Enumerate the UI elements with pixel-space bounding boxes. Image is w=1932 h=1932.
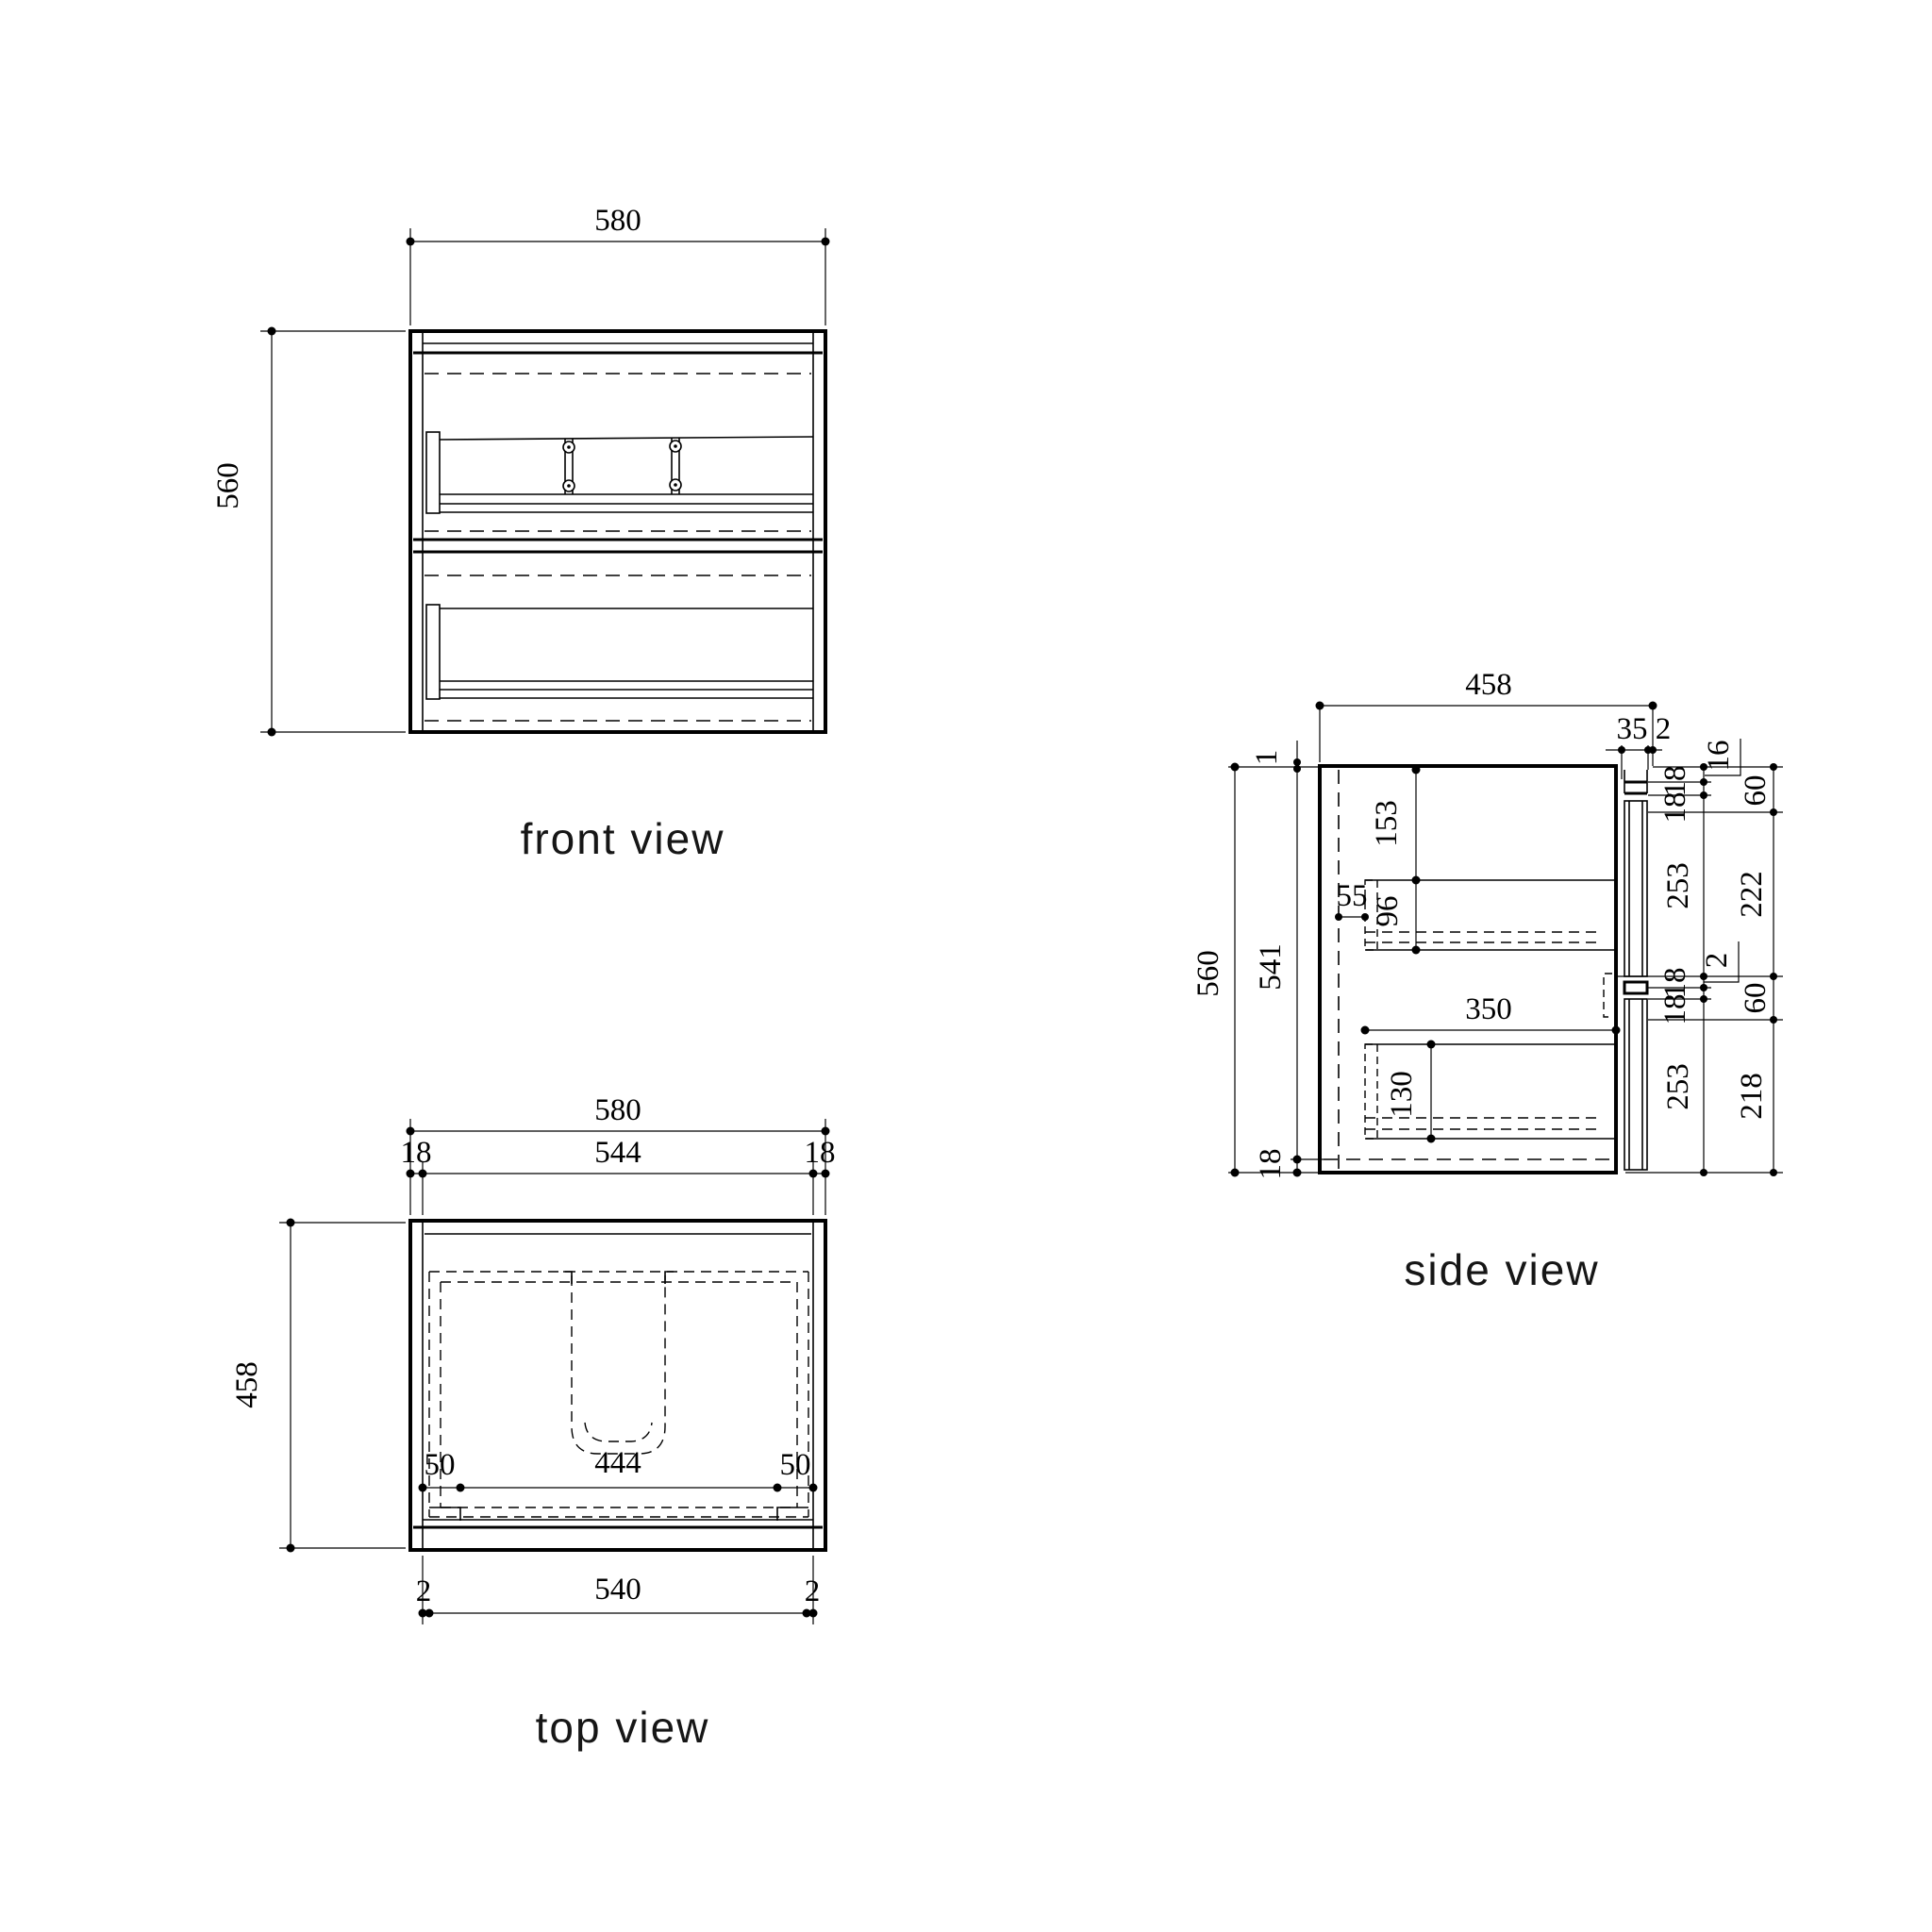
- side-view-drawing: 458 35 2 560 1 541 18: [1191, 668, 1783, 1294]
- side-right-inner-18d: 18: [1658, 994, 1692, 1025]
- front-height-dimension: 560: [211, 327, 406, 737]
- side-height-value: 560: [1191, 950, 1225, 997]
- drawing-svg: 580 560 front view: [0, 0, 1932, 1932]
- side-right-outer-218: 218: [1735, 1073, 1769, 1120]
- top-wall-left-value: 18: [401, 1136, 432, 1170]
- front-width-value: 580: [594, 204, 641, 238]
- side-front-thickness-value: 35: [1617, 712, 1648, 746]
- side-right-outer-60a: 60: [1739, 775, 1773, 807]
- basin-offset-right-value: 50: [780, 1448, 811, 1482]
- side-depth-dimension: 458: [1316, 668, 1657, 766]
- front-view-drawing: 580 560 front view: [211, 204, 830, 863]
- side-view-carcass: [1320, 766, 1616, 1173]
- side-height-dimensions: 560 1 541 18: [1191, 741, 1324, 1180]
- front-view-label: front view: [521, 814, 725, 863]
- technical-drawing-page: 580 560 front view: [0, 0, 1932, 1932]
- side-view-label: side view: [1404, 1245, 1599, 1294]
- top-width-value: 580: [594, 1093, 641, 1127]
- top-bottom-width-value: 540: [594, 1573, 641, 1607]
- side-mid-gap-value: 2: [1700, 953, 1734, 969]
- front-height-value: 560: [211, 462, 245, 509]
- top-gap-left-value: 2: [416, 1574, 432, 1608]
- side-depth-value: 458: [1465, 668, 1512, 702]
- side-bottom-drawer-side-value: 130: [1385, 1071, 1419, 1118]
- side-right-inner-253a: 253: [1661, 862, 1695, 909]
- side-right-inner-18b: 18: [1658, 792, 1692, 824]
- side-top-clearance-value: 1: [1250, 750, 1284, 766]
- side-top-drawer-offset-value: 153: [1370, 800, 1404, 847]
- top-view-label: top view: [536, 1703, 710, 1752]
- basin-offset-left-value: 50: [425, 1448, 456, 1482]
- front-width-dimension: 580: [407, 204, 830, 325]
- side-view-drawer-fronts: [1624, 770, 1647, 1170]
- side-bottom-panel-value: 18: [1254, 1149, 1288, 1180]
- side-back-clearance-value: 55: [1337, 879, 1368, 913]
- side-bottom-drawer-depth-value: 350: [1465, 992, 1512, 1026]
- top-view-carcass: [410, 1221, 825, 1550]
- top-depth-dimension: 458: [230, 1219, 406, 1553]
- side-inner-height-value: 541: [1254, 943, 1288, 991]
- basin-width-value: 444: [594, 1446, 641, 1480]
- top-view-drawing: 50 444 50 580 18 544 18 458: [230, 1093, 836, 1752]
- top-width-dimension: 580 18 544 18: [401, 1093, 836, 1215]
- side-top-rail-value: 16: [1702, 741, 1736, 772]
- side-right-inner-253b: 253: [1661, 1063, 1695, 1110]
- top-gap-right-value: 2: [805, 1574, 821, 1608]
- side-right-outer-222: 222: [1735, 871, 1769, 918]
- side-front-gap-value: 2: [1656, 712, 1672, 746]
- top-depth-value: 458: [230, 1361, 264, 1408]
- side-top-drawer-side-value: 96: [1371, 896, 1405, 927]
- side-right-outer-60b: 60: [1739, 983, 1773, 1014]
- top-inner-width-value: 544: [594, 1136, 641, 1170]
- top-wall-right-value: 18: [805, 1136, 836, 1170]
- top-bottom-dimension: 2 540 2: [416, 1556, 821, 1624]
